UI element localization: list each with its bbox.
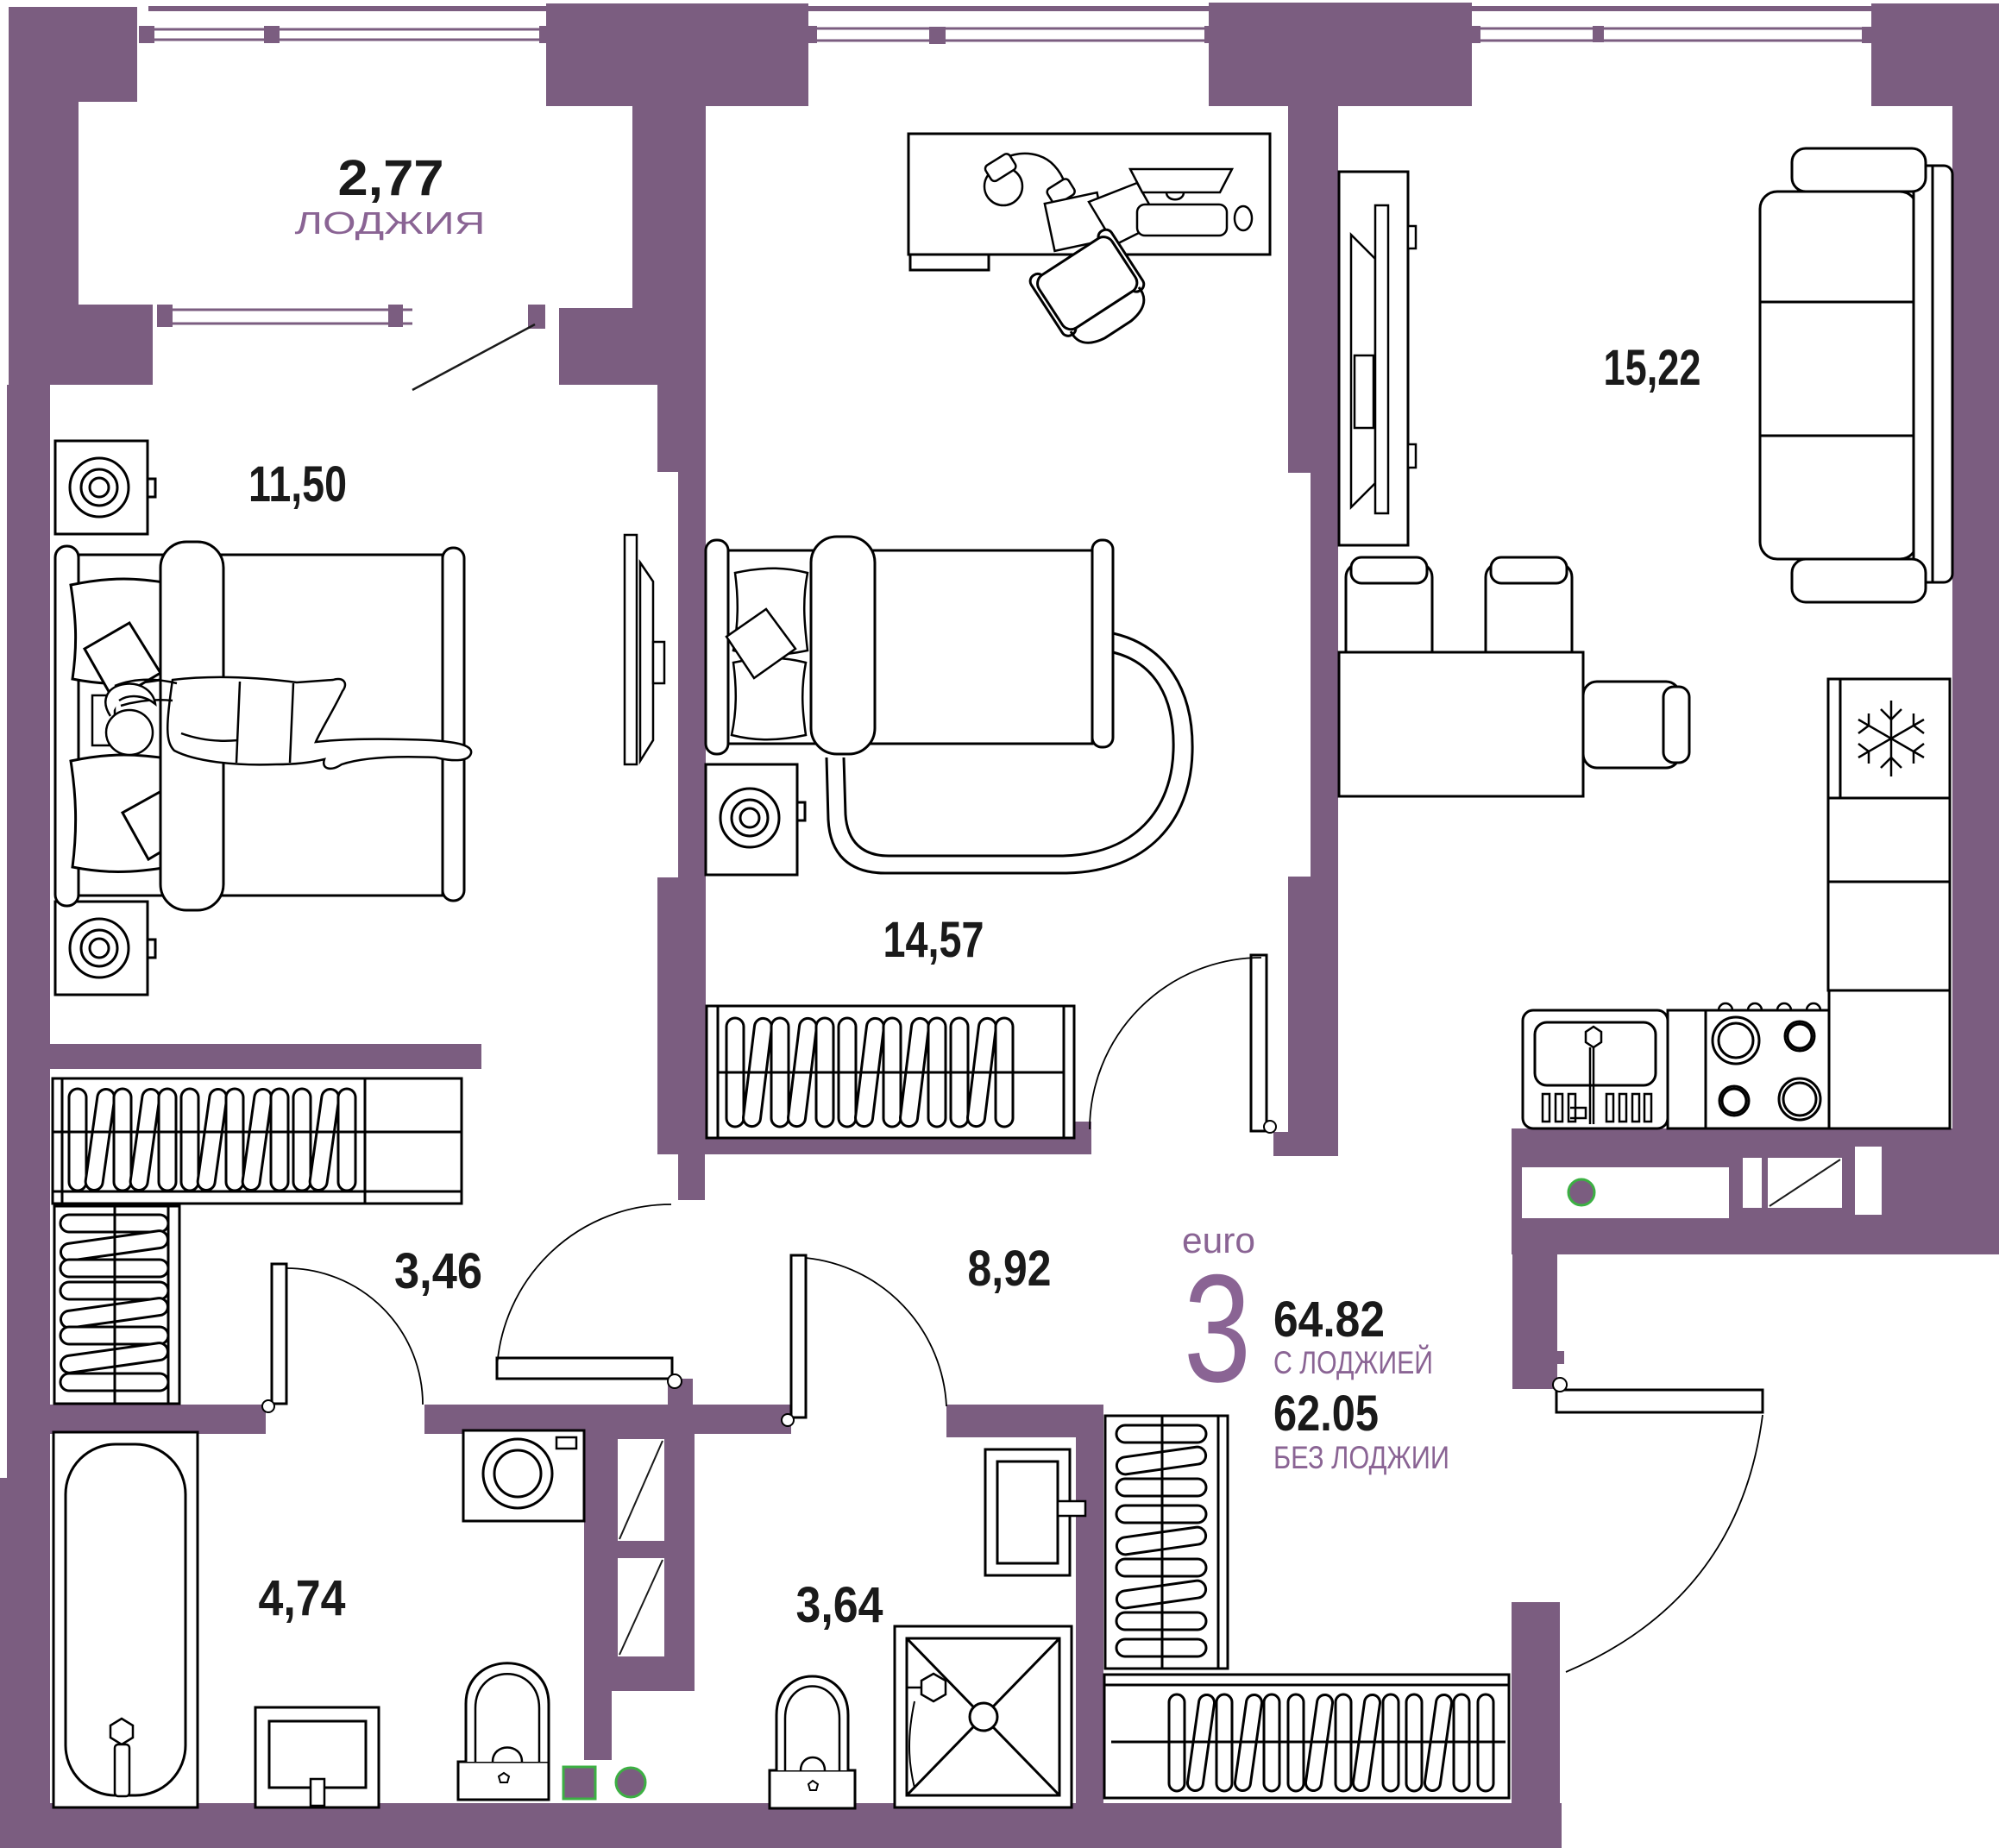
svg-text:4,74: 4,74: [259, 1570, 346, 1626]
svg-text:14,57: 14,57: [883, 912, 984, 968]
svg-text:ЛОДЖИЯ: ЛОДЖИЯ: [295, 205, 486, 241]
svg-text:11,50: 11,50: [248, 456, 347, 512]
svg-text:3,64: 3,64: [796, 1577, 883, 1633]
svg-text:62.05: 62.05: [1273, 1386, 1379, 1442]
svg-text:С ЛОДЖИЕЙ: С ЛОДЖИЕЙ: [1273, 1344, 1433, 1380]
svg-text:64.82: 64.82: [1273, 1292, 1385, 1348]
svg-text:БЕЗ ЛОДЖИИ: БЕЗ ЛОДЖИИ: [1273, 1440, 1449, 1475]
svg-text:15,22: 15,22: [1604, 340, 1701, 396]
svg-text:3,46: 3,46: [394, 1243, 482, 1299]
svg-text:8,92: 8,92: [968, 1241, 1052, 1297]
svg-text:2,77: 2,77: [338, 150, 444, 206]
svg-text:3: 3: [1184, 1242, 1251, 1414]
